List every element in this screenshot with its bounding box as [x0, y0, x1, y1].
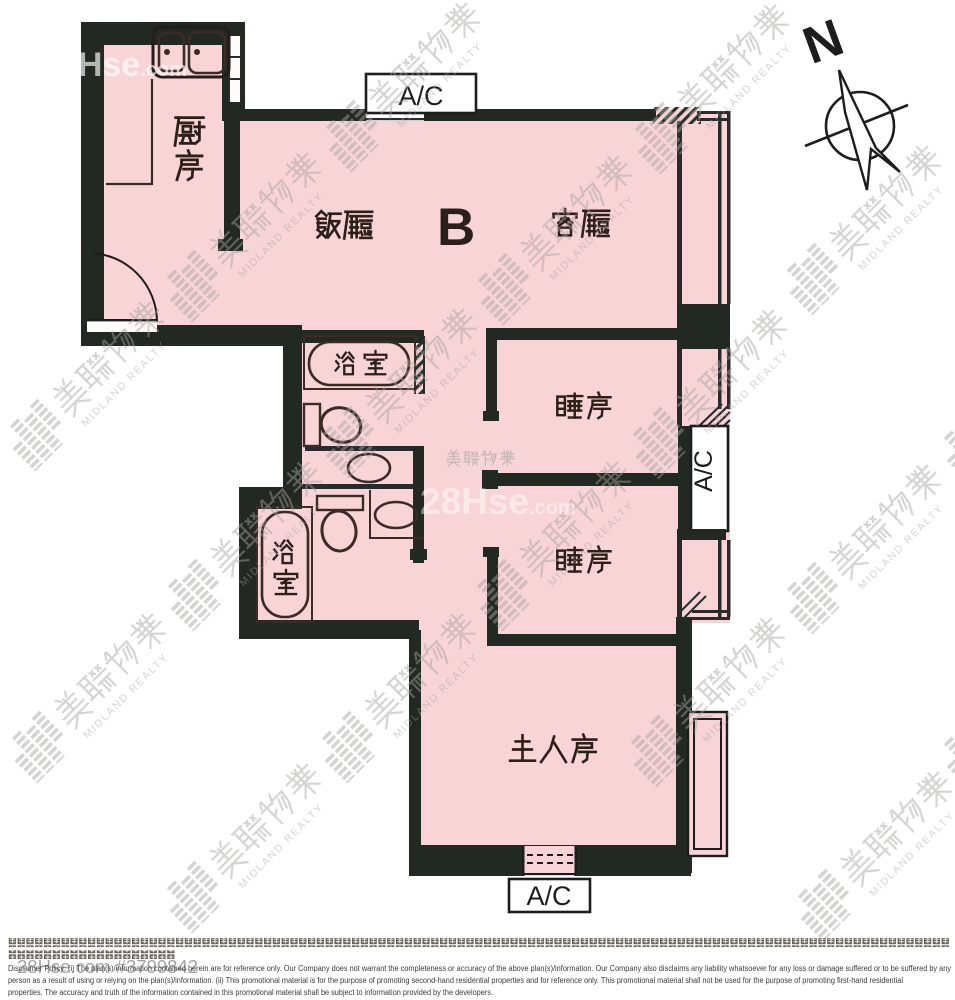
svg-text:Disclaimer Policy: (i) The pla: Disclaimer Policy: (i) The plan(s)/infor… — [8, 964, 951, 973]
svg-text:B: B — [437, 198, 475, 257]
svg-text:A/C: A/C — [526, 881, 571, 911]
svg-text:A/C: A/C — [690, 450, 718, 492]
svg-text:properties. The accuracy and t: properties. The accuracy and truth of th… — [8, 988, 493, 997]
svg-text:person as a result of using or: person as a result of using or relying o… — [8, 976, 903, 985]
